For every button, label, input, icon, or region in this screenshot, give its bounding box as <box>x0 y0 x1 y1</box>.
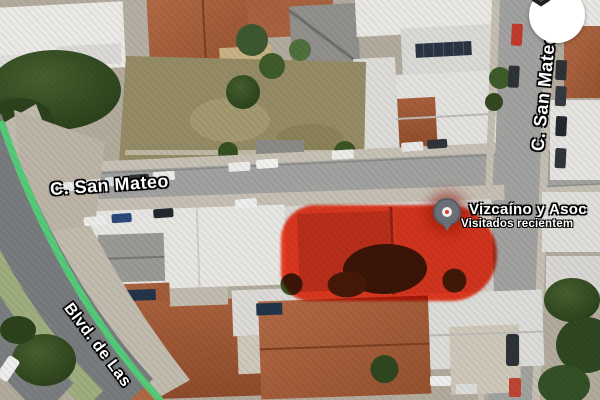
car <box>554 148 566 169</box>
tree <box>489 67 511 89</box>
car <box>153 171 176 182</box>
building-roof <box>542 192 600 252</box>
car <box>555 116 567 137</box>
tree <box>544 278 600 322</box>
tree <box>485 93 503 111</box>
car <box>331 149 354 160</box>
driveway <box>170 287 229 307</box>
solar-panels <box>256 303 282 316</box>
car <box>235 198 258 209</box>
car <box>228 161 251 172</box>
car <box>111 213 132 223</box>
tree <box>236 24 268 56</box>
car <box>430 376 451 386</box>
pin-core-dot <box>445 210 449 214</box>
car <box>153 208 174 218</box>
car <box>129 174 150 184</box>
van <box>506 334 519 366</box>
satellite-map-canvas[interactable]: C. San Mateo C. San Mateo Blvd. de Las V… <box>0 0 600 400</box>
car <box>456 384 477 394</box>
car <box>83 216 106 227</box>
car <box>427 139 448 149</box>
satellite-imagery <box>0 0 600 400</box>
car <box>555 60 567 81</box>
car <box>508 65 520 88</box>
pin-tail <box>443 224 451 231</box>
car <box>105 176 126 186</box>
car <box>555 86 567 107</box>
tree <box>259 53 285 79</box>
car <box>79 179 102 190</box>
car <box>509 378 521 397</box>
tree <box>226 75 260 109</box>
visited-place-pin-icon[interactable] <box>433 198 461 226</box>
layers-icon <box>529 0 553 9</box>
selected-parcel-highlight <box>281 205 497 301</box>
tree <box>0 316 36 344</box>
car <box>511 23 523 46</box>
car <box>53 182 76 193</box>
car <box>256 159 279 170</box>
car <box>401 141 424 152</box>
tree <box>289 39 311 61</box>
